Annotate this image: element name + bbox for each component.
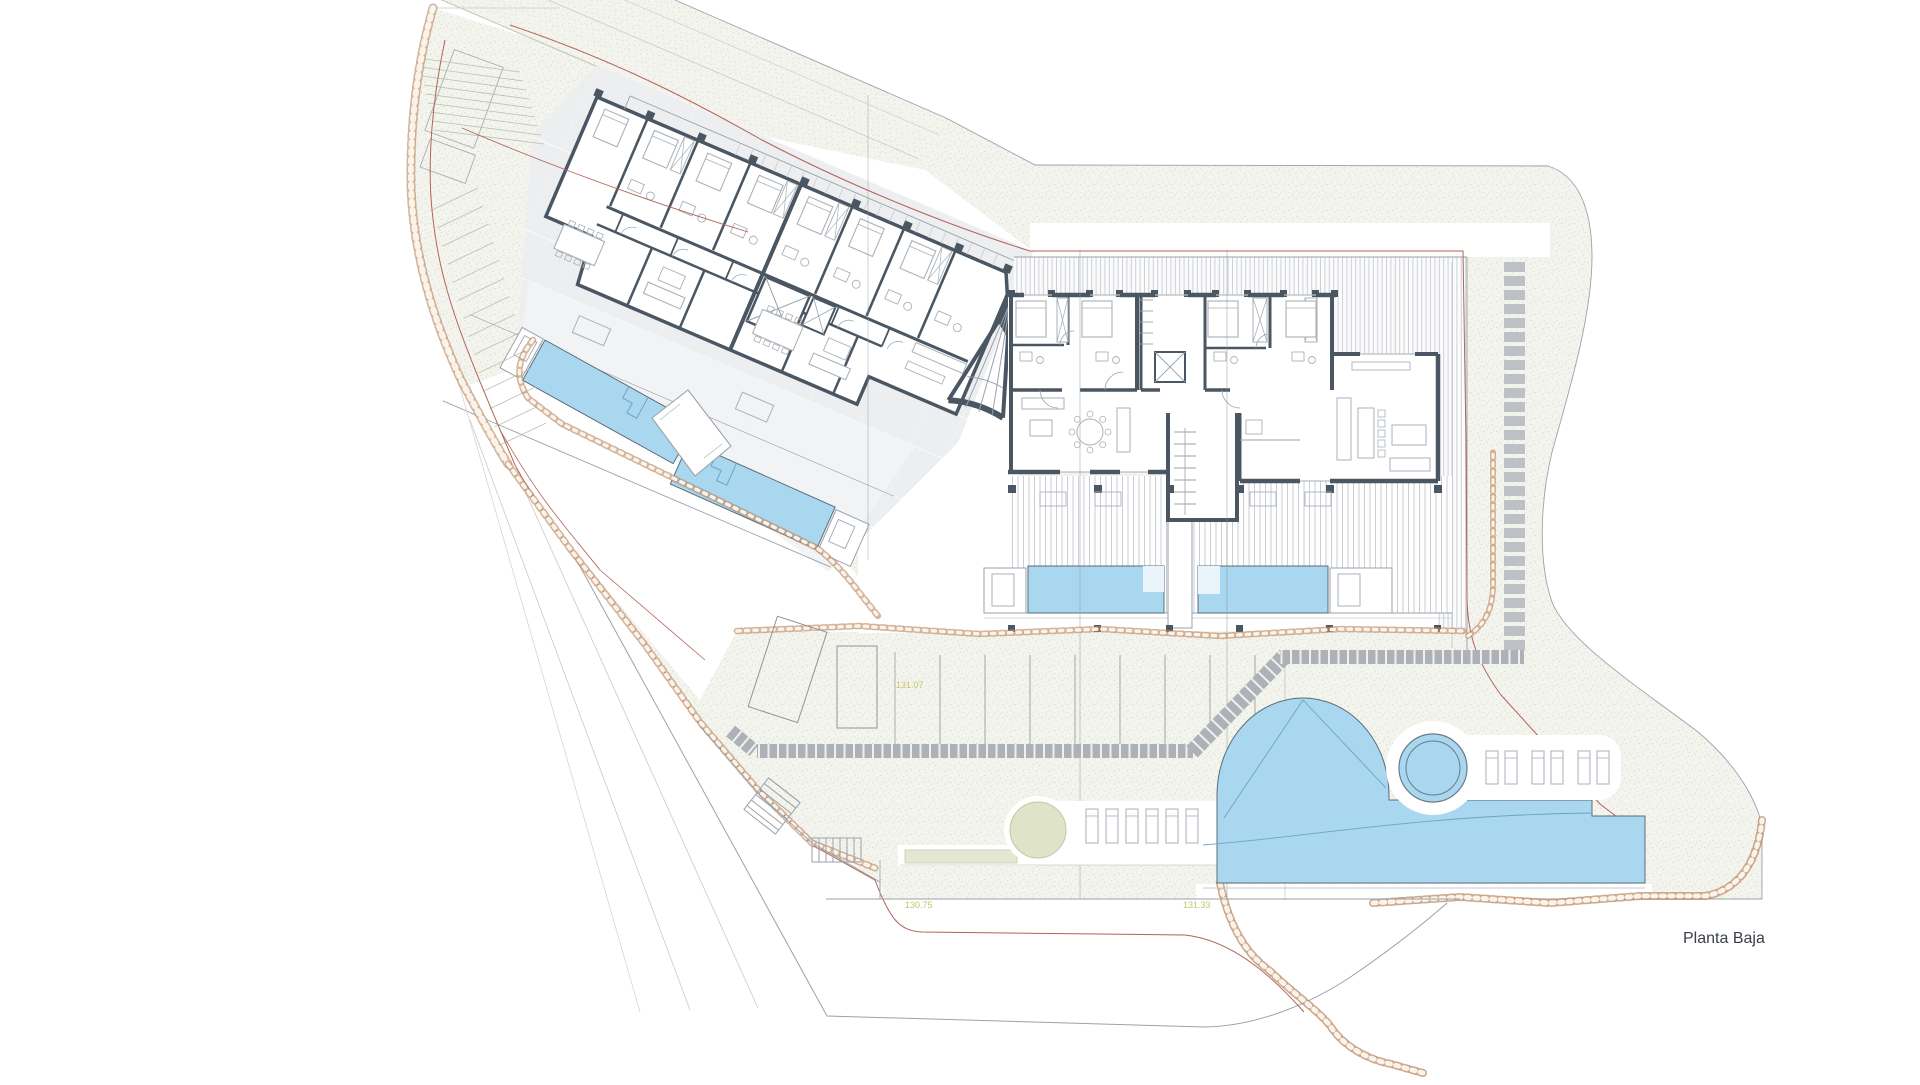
svg-text:130.75: 130.75 xyxy=(905,900,933,910)
svg-text:131.33: 131.33 xyxy=(1183,900,1211,910)
svg-text:131.07: 131.07 xyxy=(896,680,924,690)
svg-text:Planta Baja: Planta Baja xyxy=(1683,930,1765,947)
